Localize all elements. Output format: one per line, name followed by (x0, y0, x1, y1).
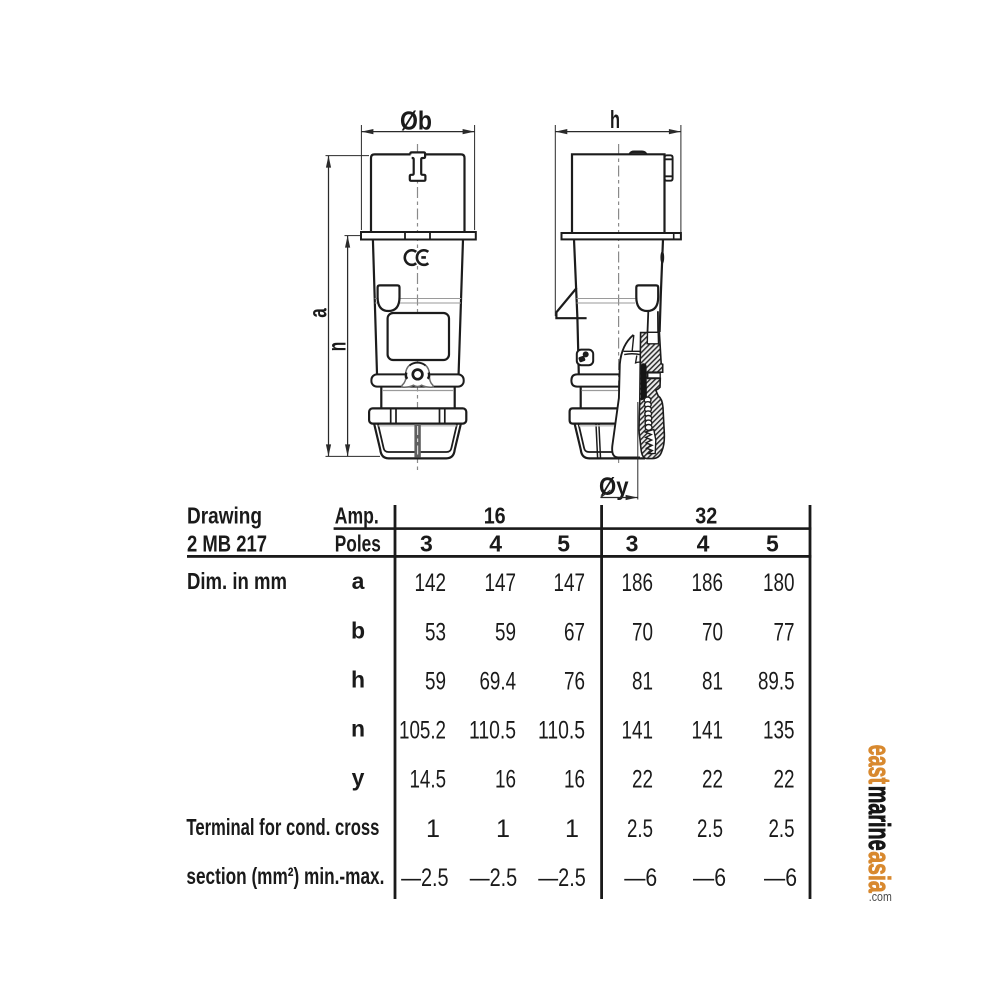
svg-text:77: 77 (774, 619, 795, 647)
svg-text:2 MB 217: 2 MB 217 (187, 531, 267, 557)
svg-text:141: 141 (692, 717, 724, 745)
svg-text:2.5: 2.5 (697, 815, 723, 843)
svg-text:1: 1 (496, 815, 510, 843)
svg-text:.com: .com (869, 890, 892, 904)
svg-text:b: b (351, 618, 365, 644)
svg-text:5: 5 (766, 531, 779, 557)
svg-text:53: 53 (425, 619, 446, 647)
svg-text:Øy: Øy (599, 473, 629, 501)
svg-text:Dim. in mm: Dim. in mm (187, 568, 287, 594)
svg-text:4: 4 (697, 531, 710, 557)
svg-text:—2.5: —2.5 (470, 864, 518, 892)
svg-text:—6: —6 (693, 864, 726, 892)
svg-text:135: 135 (763, 717, 795, 745)
svg-text:22: 22 (632, 766, 653, 794)
svg-text:142: 142 (415, 569, 447, 597)
svg-text:—2.5: —2.5 (538, 864, 586, 892)
svg-text:59: 59 (495, 619, 516, 647)
svg-text:2.5: 2.5 (769, 815, 795, 843)
svg-text:n: n (324, 342, 352, 352)
svg-text:147: 147 (554, 569, 586, 597)
svg-text:81: 81 (702, 668, 723, 696)
svg-text:2.5: 2.5 (627, 815, 653, 843)
svg-text:67: 67 (564, 619, 585, 647)
svg-text:32: 32 (695, 503, 717, 529)
svg-text:70: 70 (632, 619, 653, 647)
svg-text:59: 59 (425, 668, 446, 696)
svg-text:y: y (352, 765, 365, 791)
svg-text:Drawing: Drawing (187, 503, 262, 529)
svg-text:180: 180 (763, 569, 795, 597)
svg-text:81: 81 (632, 668, 653, 696)
svg-text:147: 147 (485, 569, 517, 597)
svg-text:16: 16 (564, 766, 585, 794)
svg-text:22: 22 (774, 766, 795, 794)
svg-text:89.5: 89.5 (758, 668, 795, 696)
svg-text:Poles: Poles (335, 531, 381, 557)
svg-text:5: 5 (557, 531, 570, 557)
svg-text:a: a (352, 568, 365, 594)
svg-text:Terminal for cond. cross: Terminal for cond. cross (186, 814, 379, 840)
svg-text:76: 76 (564, 668, 585, 696)
svg-text:16: 16 (495, 766, 516, 794)
svg-text:110.5: 110.5 (469, 717, 516, 745)
svg-text:1: 1 (565, 815, 579, 843)
svg-text:186: 186 (622, 569, 654, 597)
svg-text:1: 1 (426, 815, 440, 843)
svg-text:east: east (862, 745, 897, 785)
svg-text:—2.5: —2.5 (401, 864, 449, 892)
svg-text:asia: asia (862, 851, 897, 893)
svg-text:141: 141 (622, 717, 654, 745)
svg-text:section (mm²) min.-max.: section (mm²) min.-max. (186, 863, 384, 889)
svg-text:4: 4 (489, 531, 502, 557)
svg-text:n: n (351, 716, 365, 742)
svg-text:marine: marine (862, 786, 897, 851)
svg-text:186: 186 (692, 569, 724, 597)
svg-text:110.5: 110.5 (538, 717, 585, 745)
svg-text:Amp.: Amp. (335, 503, 379, 529)
svg-text:—6: —6 (624, 864, 657, 892)
svg-text:h: h (610, 106, 620, 134)
svg-text:a: a (305, 308, 333, 318)
svg-text:14.5: 14.5 (410, 766, 447, 794)
svg-text:22: 22 (702, 766, 723, 794)
svg-text:105.2: 105.2 (399, 717, 446, 745)
svg-text:—6: —6 (764, 864, 797, 892)
svg-text:3: 3 (626, 531, 639, 557)
svg-text:3: 3 (420, 531, 433, 557)
svg-text:h: h (351, 667, 365, 693)
svg-text:70: 70 (702, 619, 723, 647)
svg-text:16: 16 (484, 503, 506, 529)
svg-text:69.4: 69.4 (480, 668, 517, 696)
